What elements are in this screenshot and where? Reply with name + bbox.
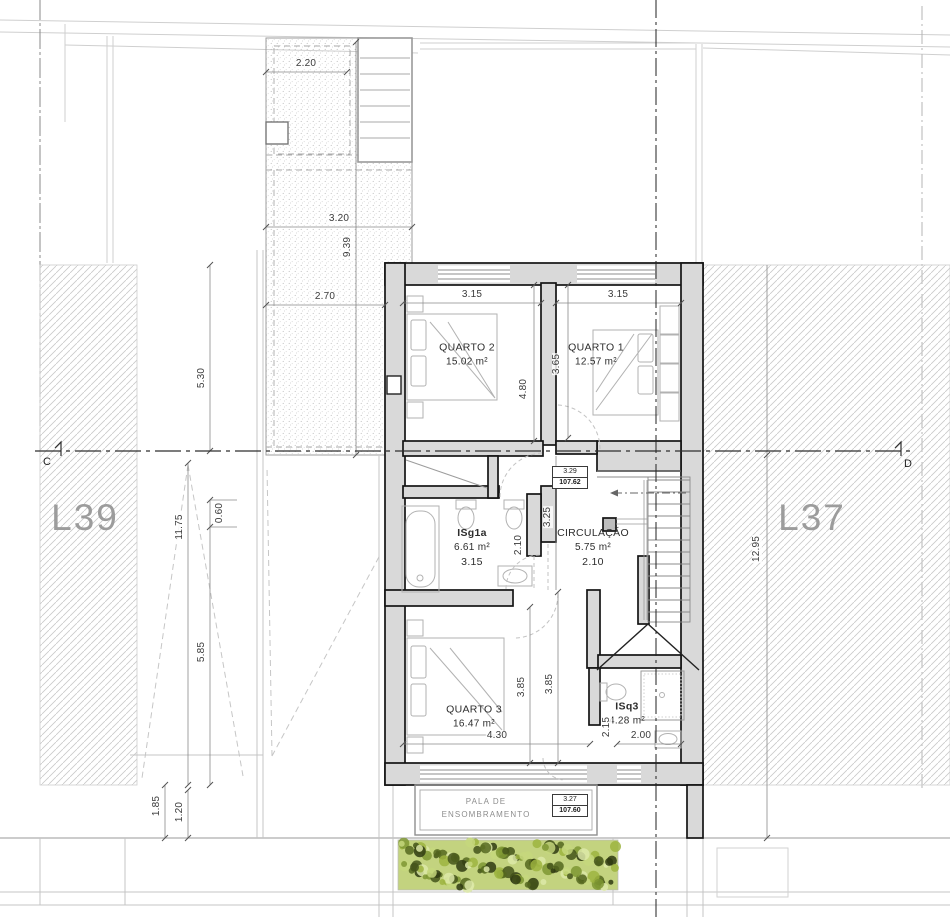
section-marker-d: D bbox=[904, 458, 912, 470]
level-box-upper: 3.29 107.62 bbox=[552, 466, 588, 489]
room-label-isq3: ISq3 4.28 m² bbox=[609, 701, 645, 728]
room-width-dim: 2.10 bbox=[557, 556, 629, 570]
room-label-quarto2: QUARTO 2 15.02 m² bbox=[439, 342, 495, 369]
garden-dashed-lines bbox=[142, 465, 380, 778]
room-name: ISq3 bbox=[609, 701, 645, 715]
dim-left-small: 0.60 bbox=[215, 502, 225, 524]
terrace-column bbox=[266, 122, 288, 144]
dim-q2-width: 3.15 bbox=[461, 290, 483, 300]
room-name: QUARTO 2 bbox=[439, 342, 495, 356]
level-box-lower: 3.27 107.60 bbox=[552, 794, 588, 817]
dim-bottom-left-inner: 1.20 bbox=[175, 801, 185, 823]
room-area: 6.61 m² bbox=[454, 541, 490, 554]
dim-q1-width: 3.15 bbox=[607, 290, 629, 300]
dim-terrace-lower: 2.70 bbox=[314, 292, 336, 302]
site-context-lines bbox=[0, 20, 950, 263]
pala-label: PALA DE ENSOMBRAMENTO bbox=[442, 796, 531, 822]
room-area: 5.75 m² bbox=[557, 541, 629, 554]
level-elevation: 107.62 bbox=[553, 477, 587, 488]
dim-isq3-width: 2.00 bbox=[630, 731, 652, 741]
room-label-quarto1: QUARTO 1 12.57 m² bbox=[568, 342, 624, 369]
hedge bbox=[398, 837, 621, 893]
dim-left-total: 11.75 bbox=[175, 513, 185, 540]
room-area: 4.28 m² bbox=[609, 714, 645, 727]
room-area: 12.57 m² bbox=[568, 355, 624, 368]
room-area: 16.47 m² bbox=[446, 717, 502, 730]
dim-isq3-depth: 2.15 bbox=[602, 716, 612, 738]
small-window bbox=[387, 376, 401, 394]
level-height: 3.29 bbox=[553, 467, 587, 477]
room-label-isg1a: ISg1a 6.61 m² 3.15 bbox=[454, 527, 490, 569]
room-area: 15.02 m² bbox=[439, 355, 495, 368]
dim-right-total: 12.95 bbox=[752, 535, 762, 563]
dim-terrace-height: 9.39 bbox=[343, 236, 353, 258]
parcel-label-right: L37 bbox=[778, 497, 846, 539]
dim-isg-depth: 2.10 bbox=[514, 534, 524, 556]
dim-terrace-top: 2.20 bbox=[295, 59, 317, 69]
dim-q1-depth: 3.65 bbox=[552, 353, 562, 375]
dim-terrace-width: 3.20 bbox=[328, 214, 350, 224]
plan-linework bbox=[0, 0, 950, 917]
room-name: QUARTO 3 bbox=[446, 704, 502, 718]
dim-q2-depth: 4.80 bbox=[519, 378, 529, 400]
dim-left-lower: 5.85 bbox=[197, 641, 207, 663]
room-width-dim: 3.15 bbox=[454, 556, 490, 570]
pala-line1: PALA DE bbox=[442, 796, 531, 809]
room-label-circulacao: CIRCULAÇÃO 5.75 m² 2.10 bbox=[557, 527, 629, 569]
room-name: ISg1a bbox=[454, 527, 490, 541]
dim-q3-width: 4.30 bbox=[486, 731, 508, 741]
room-name: CIRCULAÇÃO bbox=[557, 527, 629, 541]
room-label-quarto3: QUARTO 3 16.47 m² bbox=[446, 704, 502, 731]
pala-line2: ENSOMBRAMENTO bbox=[442, 809, 531, 822]
dim-circ-depth: 3.25 bbox=[543, 506, 553, 528]
section-marker-c: C bbox=[43, 456, 51, 468]
dim-left-upper: 5.30 bbox=[197, 367, 207, 389]
level-elevation: 107.60 bbox=[553, 805, 587, 816]
exterior-stair bbox=[358, 38, 412, 162]
floor-plan-canvas: L39 L37 C D QUARTO 2 15.02 m² QUARTO 1 1… bbox=[0, 0, 950, 917]
level-height: 3.27 bbox=[553, 795, 587, 805]
dim-bottom-left-outer: 1.85 bbox=[152, 795, 162, 817]
dim-q3-depth-a: 3.85 bbox=[517, 676, 527, 698]
dim-q3-depth-b: 3.85 bbox=[545, 673, 555, 695]
parcel-label-left: L39 bbox=[51, 497, 119, 539]
room-name: QUARTO 1 bbox=[568, 342, 624, 356]
